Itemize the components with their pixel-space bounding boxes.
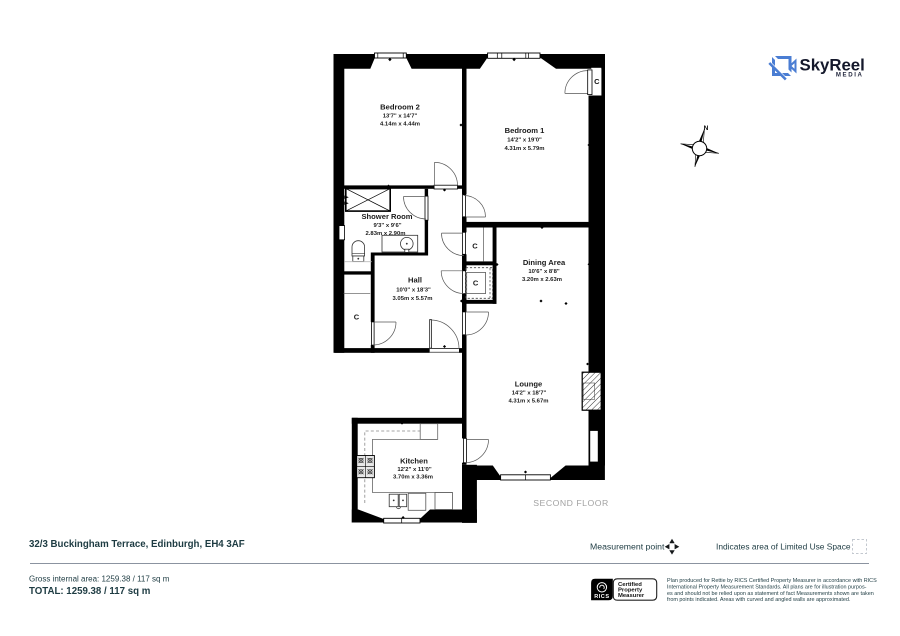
svg-text:3.05m x 5.57m: 3.05m x 5.57m [393,296,433,302]
svg-text:2.83m x 2.90m: 2.83m x 2.90m [366,231,406,237]
svg-text:Shower Room: Shower Room [361,212,412,221]
svg-text:International Property Measur: International Property Measurement Stand… [667,584,867,590]
svg-text:Kitchen: Kitchen [400,457,428,466]
svg-text:es and should not be relied up: es and should not be relied upon as stat… [667,591,874,597]
svg-text:Bedroom 1: Bedroom 1 [505,126,545,135]
svg-text:MEDIA: MEDIA [836,71,864,78]
svg-text:10'6" x 8'8": 10'6" x 8'8" [528,269,560,275]
svg-text:14'2" x 19'0": 14'2" x 19'0" [507,138,542,144]
svg-text:4.31m x 5.67m: 4.31m x 5.67m [509,398,549,404]
svg-text:from points indicated. Areas w: from points indicated. Areas with curved… [667,597,851,603]
svg-text:32/3 Buckingham Terrace, Edinb: 32/3 Buckingham Terrace, Edinburgh, EH4 … [29,539,245,550]
svg-text:Indicates area of Limited Use: Indicates area of Limited Use Space [716,542,851,552]
svg-text:Dining Area: Dining Area [523,258,566,267]
svg-text:10'0" x 18'3": 10'0" x 18'3" [396,287,431,293]
svg-text:SECOND FLOOR: SECOND FLOOR [533,498,609,508]
svg-text:3.20m x 2.63m: 3.20m x 2.63m [522,277,562,283]
svg-text:Gross internal area: 1259.38 /: Gross internal area: 1259.38 / 117 sq m [29,574,170,583]
svg-text:Measurement point: Measurement point [590,542,665,552]
svg-text:Lounge: Lounge [515,380,542,389]
svg-text:C: C [472,242,478,251]
svg-text:C: C [473,279,479,288]
svg-text:N: N [704,125,709,132]
svg-text:RICS: RICS [594,594,609,600]
svg-text:Bedroom 2: Bedroom 2 [380,103,420,112]
svg-text:4.14m x 4.44m: 4.14m x 4.44m [380,122,420,128]
svg-text:13'7" x 14'7": 13'7" x 14'7" [383,114,418,120]
svg-text:9'3" x 9'6": 9'3" x 9'6" [373,223,401,229]
svg-text:C: C [354,313,360,322]
svg-text:C: C [594,77,600,86]
svg-text:3.70m x 3.36m: 3.70m x 3.36m [393,475,433,481]
svg-text:12'2" x 11'0": 12'2" x 11'0" [397,467,431,473]
svg-text:TOTAL: 1259.38 / 117 sq m: TOTAL: 1259.38 / 117 sq m [29,586,151,597]
svg-text:Measurer: Measurer [618,593,645,599]
svg-text:14'2" x 18'7": 14'2" x 18'7" [512,391,547,397]
svg-text:Plan produced for Rettie by RI: Plan produced for Rettie by RICS Certifi… [667,578,877,584]
svg-text:4.31m x 5.79m: 4.31m x 5.79m [505,146,545,152]
svg-text:Hall: Hall [408,276,422,285]
